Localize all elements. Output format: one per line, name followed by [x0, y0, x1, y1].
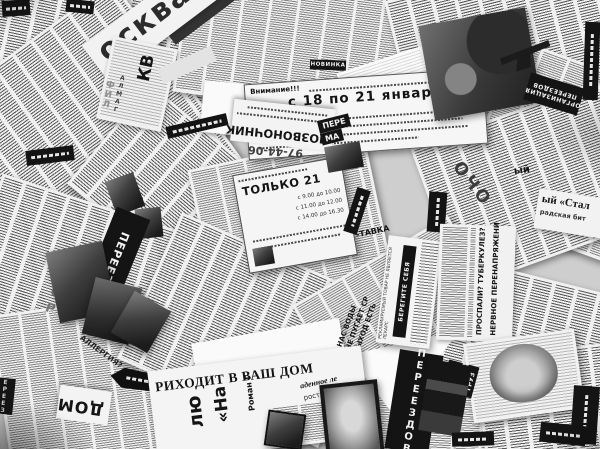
- yi-fragment-text: ый: [513, 165, 530, 177]
- ma-chip-text: МА: [324, 131, 340, 143]
- lyu-text: лю: [185, 394, 208, 428]
- scrap-dom: ДОМ: [56, 385, 112, 426]
- illegible-white-text: [6, 6, 26, 10]
- newspaper-collage-photo: осква КВ АЛМАГ ФИЛ НОВИНКА Внимание!!! с…: [0, 0, 600, 449]
- stamp-photo: [252, 245, 275, 266]
- newsprint-texture: [439, 227, 476, 338]
- headline-chip: [452, 431, 494, 446]
- illegible-white-text: [70, 4, 90, 9]
- small-dark-photo: [264, 410, 307, 449]
- prospali-line1-text: ПРОСПАЛИ? ТУБЕРКУЛЕЗ?: [476, 231, 487, 335]
- novinka-chip: НОВИНКА: [310, 59, 346, 70]
- edge-left-text: ЕРЕЕЗ: [0, 378, 9, 414]
- framed-face-photo: [319, 379, 385, 449]
- phone-upside-down-text: 97-44-06: [248, 144, 304, 159]
- illegible-white-text: [546, 431, 580, 438]
- illegible-white-text: [458, 437, 488, 441]
- novinka-text: НОВИНКА: [310, 61, 345, 68]
- dom-text: ДОМ: [56, 395, 105, 417]
- illegible-white-text: [31, 152, 69, 160]
- beregite-text: БЕРЕГИТЕ СЕБЯ: [397, 261, 411, 322]
- illegible-white-text: [435, 198, 440, 226]
- edge-black-strip: [583, 22, 600, 100]
- headline-chip: [1, 0, 30, 17]
- scrap-prospali: ПРОСПАЛИ? ТУБЕРКУЛЕЗ? НЕРВНОЕ ПЕРЕНАПРЯЖ…: [436, 224, 516, 343]
- prospali-line2-text: НЕРВНОЕ ПЕРЕНАПРЯЖЕНИ: [490, 232, 501, 336]
- scrap-tolko21-ad: ТОЛЬКО 21 с 9.00 до 10.00 с 11.00 до 12.…: [232, 156, 358, 274]
- pozvonochnik-text: ПОЗВОНОЧНИК: [225, 123, 329, 145]
- scrap-teapot: [463, 329, 585, 424]
- na-quote-text: «На: [212, 385, 233, 423]
- illegible-white-text: [589, 34, 594, 89]
